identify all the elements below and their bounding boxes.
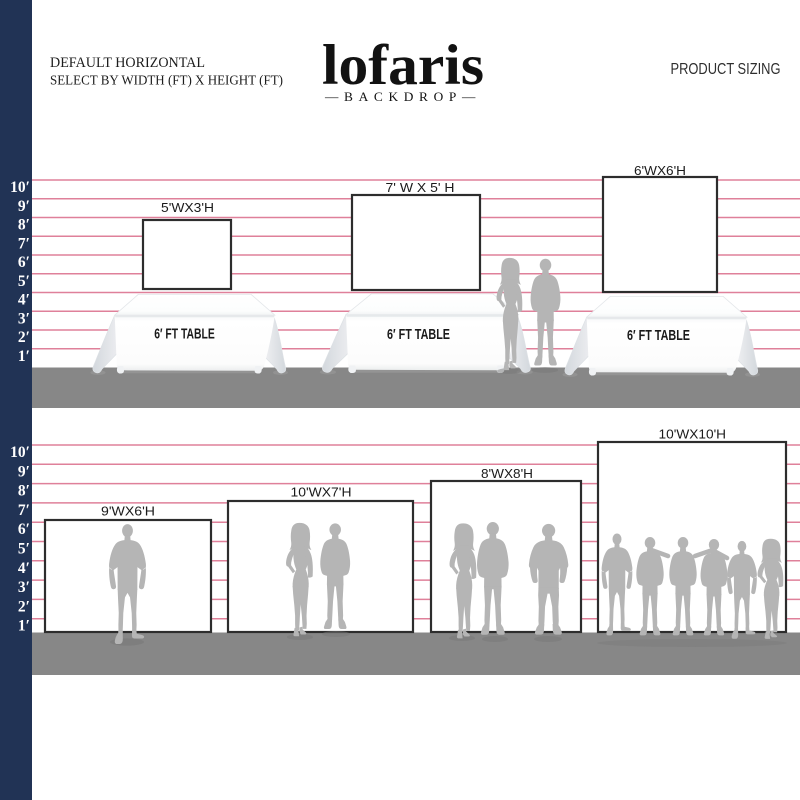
svg-text:7′: 7′: [18, 502, 30, 519]
svg-text:4′: 4′: [18, 292, 30, 309]
svg-text:6′: 6′: [18, 254, 30, 271]
svg-text:DEFAULT HORIZONTAL: DEFAULT HORIZONTAL: [50, 55, 205, 71]
svg-text:3′: 3′: [18, 579, 30, 596]
svg-text:7' W X 5' H: 7' W X 5' H: [386, 180, 455, 195]
svg-text:9'WX6'H: 9'WX6'H: [101, 504, 155, 519]
svg-text:6'WX6'H: 6'WX6'H: [634, 163, 686, 178]
svg-text:5′: 5′: [18, 273, 30, 290]
svg-text:1′: 1′: [18, 618, 30, 635]
svg-text:8′: 8′: [18, 217, 30, 234]
svg-text:3′: 3′: [18, 310, 30, 327]
svg-text:6′ FT TABLE: 6′ FT TABLE: [627, 327, 690, 344]
svg-text:2′: 2′: [18, 598, 30, 615]
svg-text:PRODUCT SIZING: PRODUCT SIZING: [671, 61, 781, 78]
svg-text:7′: 7′: [18, 235, 30, 252]
svg-text:6′ FT TABLE: 6′ FT TABLE: [154, 326, 215, 343]
svg-text:10′: 10′: [10, 444, 30, 461]
svg-text:6′: 6′: [18, 521, 30, 538]
svg-text:8′: 8′: [18, 483, 30, 500]
svg-text:lofaris: lofaris: [322, 34, 484, 97]
svg-text:8'WX8'H: 8'WX8'H: [481, 466, 533, 481]
svg-text:2′: 2′: [18, 329, 30, 346]
svg-text:5′: 5′: [18, 541, 30, 558]
svg-text:SELECT BY WIDTH (FT) X HEIGHT: SELECT BY WIDTH (FT) X HEIGHT (FT): [50, 73, 283, 88]
svg-text:6′ FT TABLE: 6′ FT TABLE: [387, 326, 450, 343]
svg-text:1′: 1′: [18, 348, 30, 365]
svg-text:4′: 4′: [18, 560, 30, 577]
svg-text:10'WX7'H: 10'WX7'H: [291, 485, 352, 500]
svg-text:—BACKDROP—: —BACKDROP—: [324, 89, 481, 104]
svg-text:9′: 9′: [18, 198, 30, 215]
svg-text:10′: 10′: [10, 179, 30, 196]
svg-text:9′: 9′: [18, 463, 30, 480]
svg-text:10'WX10'H: 10'WX10'H: [659, 427, 727, 442]
svg-text:5'WX3'H: 5'WX3'H: [161, 200, 214, 215]
